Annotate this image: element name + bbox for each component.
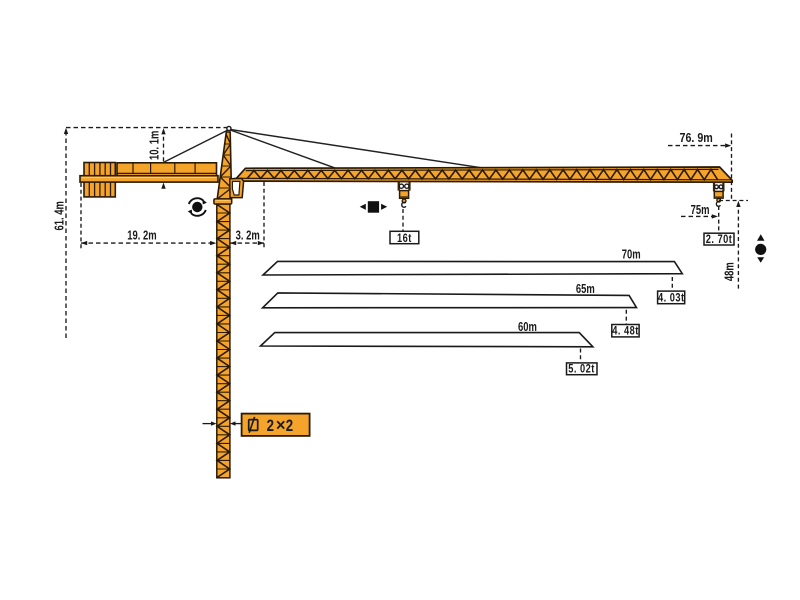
svg-text:76. 9m: 76. 9m bbox=[680, 131, 713, 145]
svg-text:10. 1m: 10. 1m bbox=[148, 131, 162, 160]
svg-text:4. 03t: 4. 03t bbox=[658, 291, 685, 304]
svg-text:65m: 65m bbox=[576, 283, 595, 297]
svg-text:5. 02t: 5. 02t bbox=[568, 363, 595, 376]
svg-text:16t: 16t bbox=[397, 232, 412, 245]
svg-text:60m: 60m bbox=[518, 321, 537, 335]
svg-text:70m: 70m bbox=[622, 249, 641, 263]
svg-text:61. 4m: 61. 4m bbox=[53, 201, 67, 230]
svg-text:4. 48t: 4. 48t bbox=[612, 325, 639, 338]
svg-text:2: 2 bbox=[286, 417, 293, 436]
svg-text:2. 70t: 2. 70t bbox=[706, 233, 733, 246]
svg-text:2: 2 bbox=[267, 417, 274, 436]
svg-text:75m: 75m bbox=[691, 204, 710, 218]
svg-text:48m: 48m bbox=[723, 262, 737, 281]
svg-text:19. 2m: 19. 2m bbox=[127, 229, 156, 243]
svg-text:3. 2m: 3. 2m bbox=[236, 229, 260, 243]
